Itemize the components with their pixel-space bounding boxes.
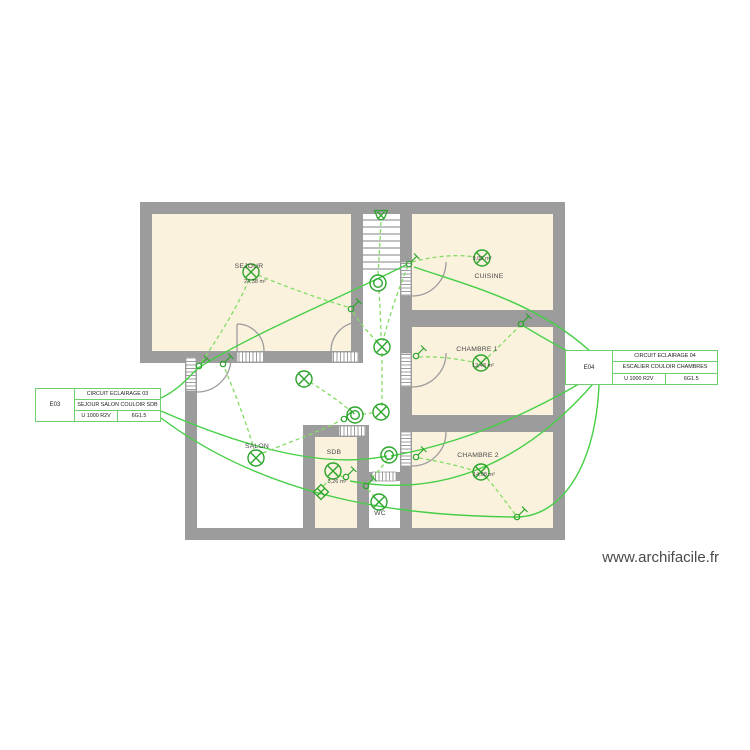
door-leaf [401,432,411,466]
circuit-box-e04: E04 CIRCUIT ECLAIRAGE 04 ESCALIER COULOI… [565,350,718,385]
room-name-label: SALON [245,443,269,450]
circuit-title: CIRCUIT ECLAIRAGE 03 [75,389,160,400]
wire [378,222,381,276]
door-leaf [401,353,411,387]
circuit-rooms: SEJOUR SALON COULOIR SDB [75,400,160,411]
staircase [363,220,400,269]
ceiling-light-icon [248,450,264,466]
door-leaf [237,352,264,362]
circuit-cable: U 1000 R2V [75,411,118,421]
ceiling-light-icon [296,371,312,387]
circuit-title: CIRCUIT ECLAIRAGE 04 [613,351,717,362]
room-area-label: 14,08 m² [473,472,495,478]
room-fill-cuisine [412,214,553,310]
room-area-label: 3,26 m² [328,479,347,485]
circuit-section: 6G1.5 [118,411,160,421]
circuit-code: E04 [566,351,613,384]
watermark: www.archifacile.fr [602,549,719,566]
ceiling-light-icon [374,339,390,355]
wire [310,382,350,411]
circuit-cable: U 1000 R2V [613,374,666,384]
circuit-rooms: ESCALIER COULOIR CHAMBRES [613,362,717,373]
wire [379,290,381,340]
door-leaf [332,352,359,362]
door-leaf [339,426,366,436]
dcl-outlet-icon [370,275,386,291]
room-name-label: CHAMBRE 1 [456,346,497,353]
floor-plan-canvas: SEJOUR 24,38 m² 9,06 m² CUISINE CHAMBRE … [0,0,750,750]
room-name-label: SEJOUR [235,263,264,270]
ceiling-light-icon [373,404,389,420]
circuit-box-e03: E03 CIRCUIT ECLAIRAGE 03 SEJOUR SALON CO… [35,388,161,422]
room-name-label: CUISINE [475,273,504,280]
room-name-label: WC [374,510,386,517]
circuit-section: 6G1.5 [666,374,718,384]
room-area-label: 9,06 m² [473,256,492,262]
room-area-label: 24,38 m² [244,279,266,285]
door-leaf [186,357,196,391]
room-name-label: CHAMBRE 2 [457,452,498,459]
room-name-label: SDB [327,449,342,456]
ceiling-light-icon [371,494,387,510]
circuit-code: E03 [36,389,75,421]
room-area-label: 12,43 m² [472,363,494,369]
